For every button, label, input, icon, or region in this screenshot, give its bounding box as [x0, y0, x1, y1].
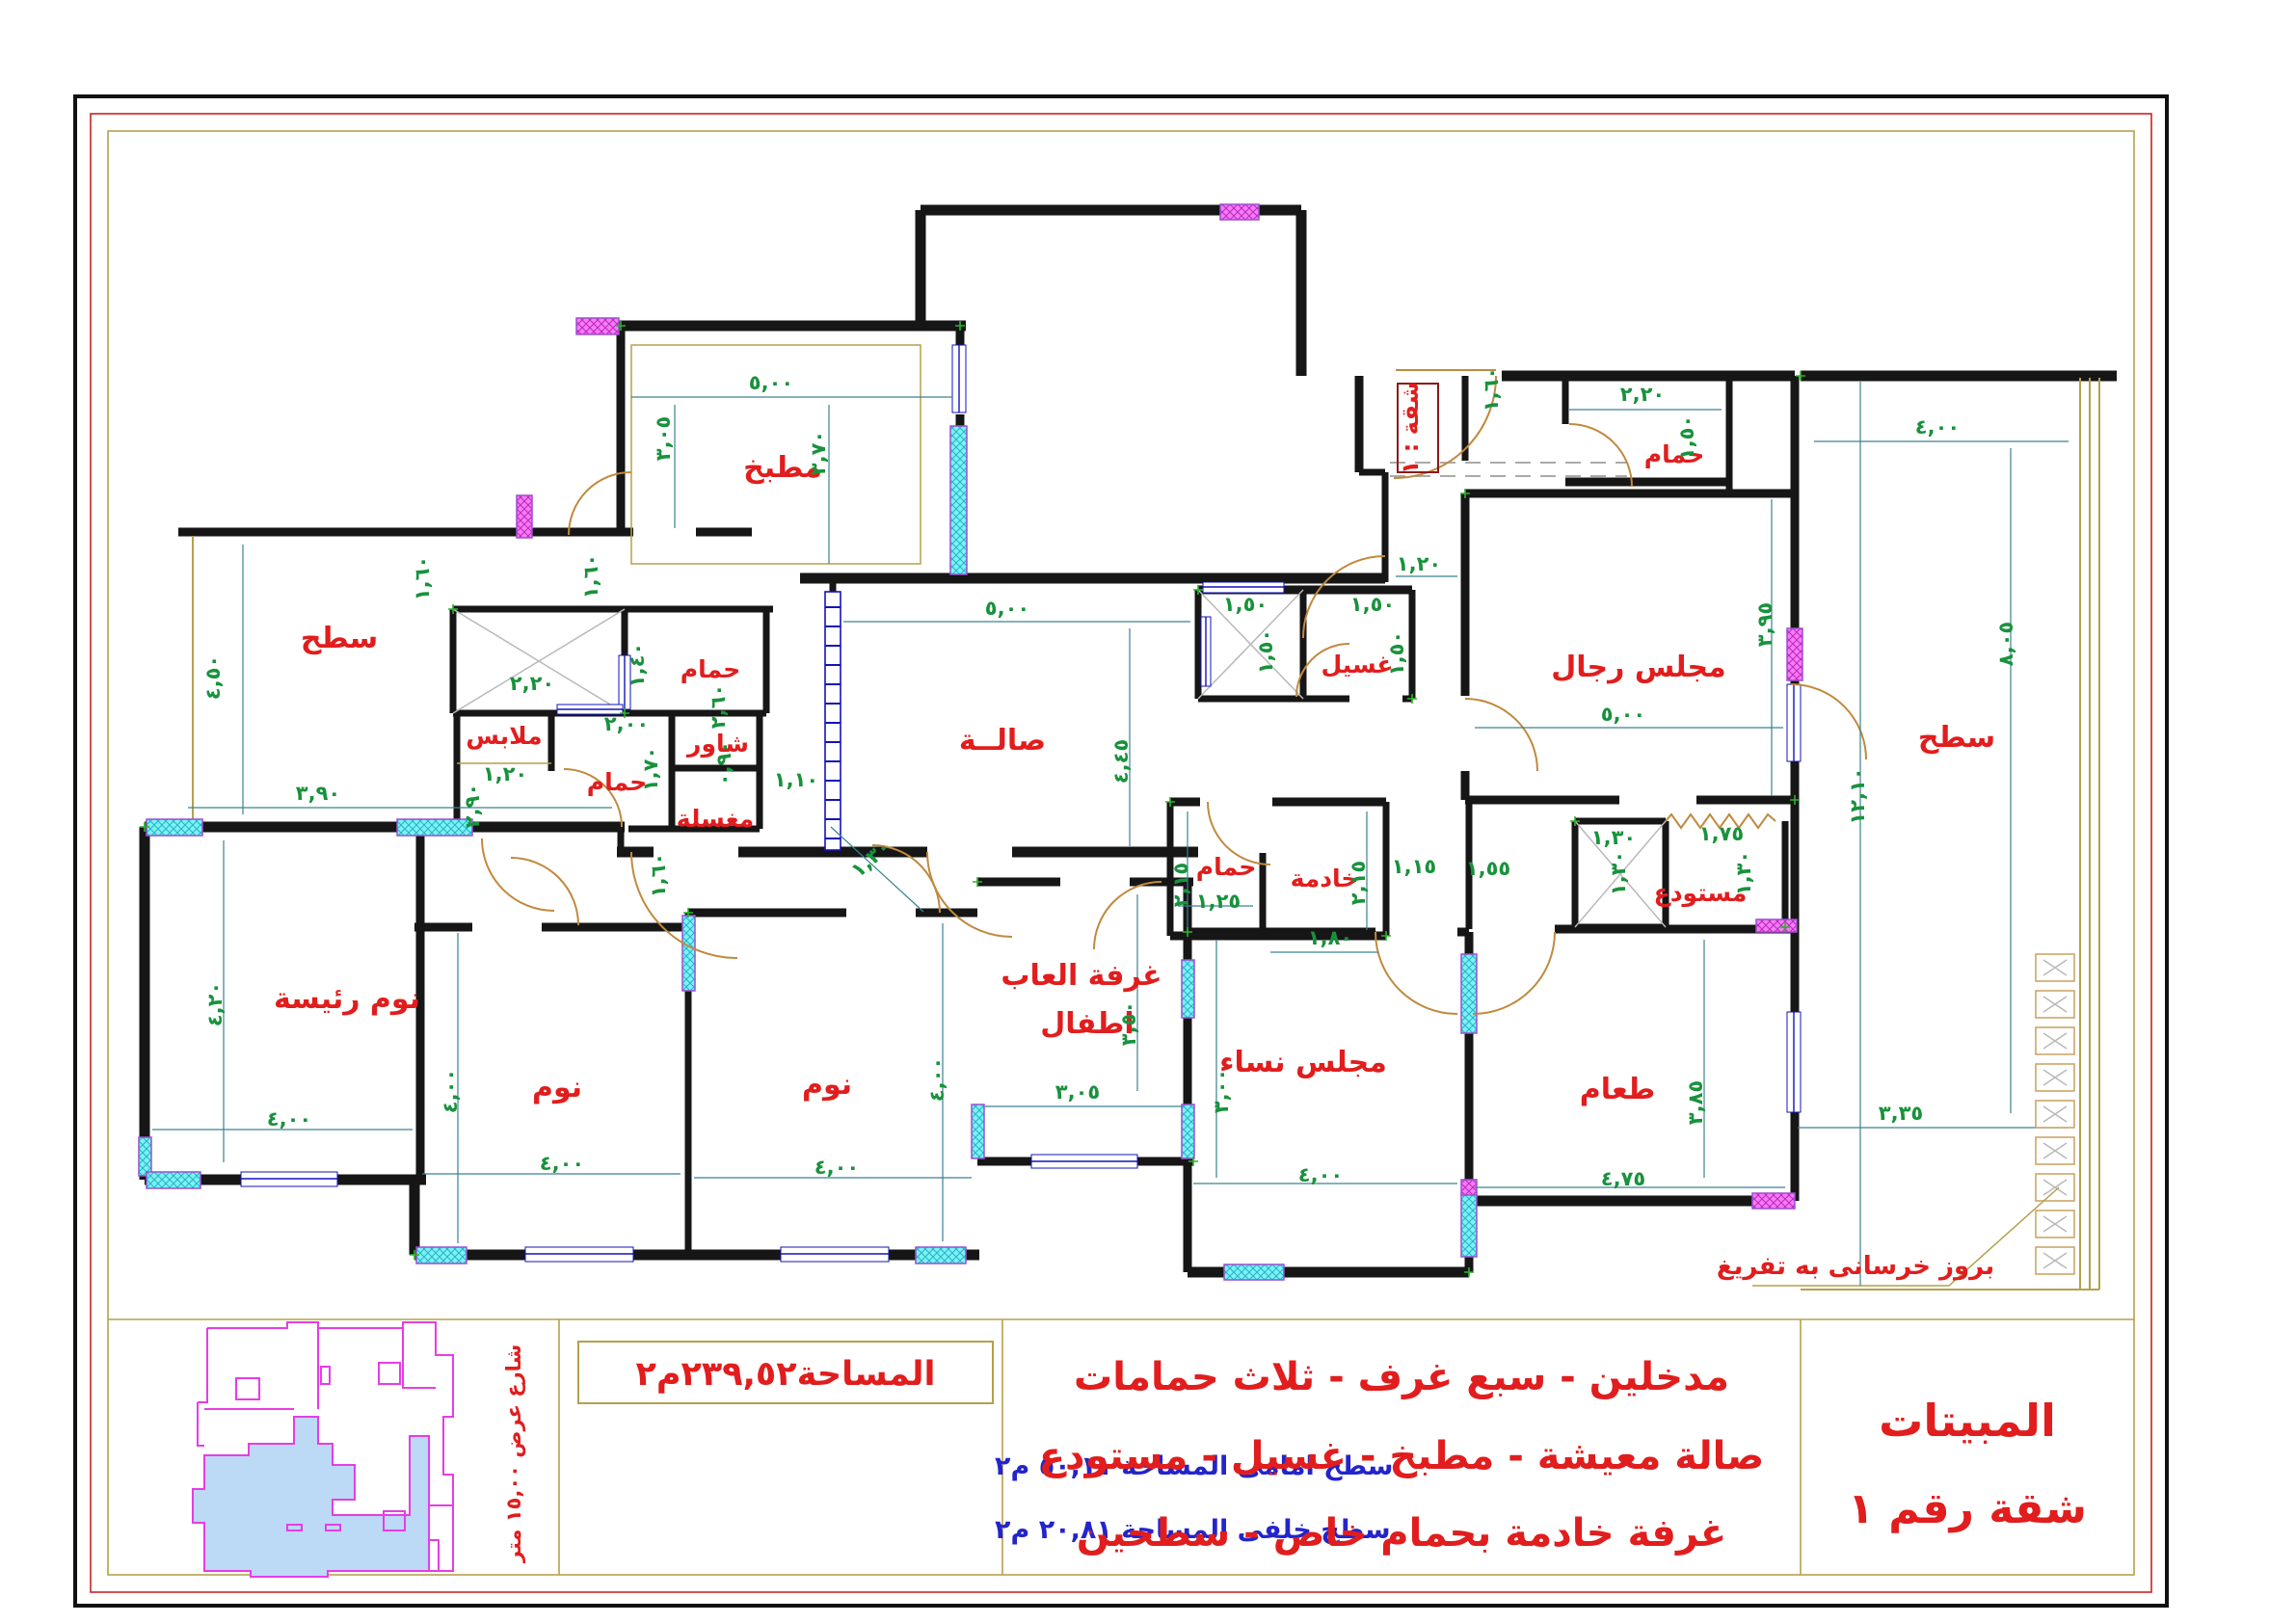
dim: ٣,٣٥ [1879, 1102, 1923, 1125]
site-shaded-area [193, 1417, 429, 1577]
apartment-tag-text: شقة : ١ [1397, 382, 1424, 474]
description-block: مدخلين - سبع غرف - ثلاث حمامات صالة معيش… [1039, 1355, 1765, 1556]
dim: ٤,٠٠ [925, 1057, 948, 1102]
room-label-bath-mid: حمام [587, 768, 648, 796]
site-key-plan: شارع عرض ١٥,٠٠ متر [193, 1322, 525, 1577]
dim: ٤,٥٠ [201, 655, 225, 700]
window-icon [416, 1247, 467, 1264]
dim: ١,٨٠ [1308, 926, 1352, 949]
dim: ٤,٠٠ [814, 1156, 859, 1179]
dim: ٥,٠٠ [1601, 703, 1645, 726]
dim: ٥,٠٠ [985, 597, 1029, 620]
dim: ١,٢٠ [483, 762, 527, 785]
dim: ٣,٧٠ [807, 431, 830, 475]
dim: ٨,٠٥ [1994, 622, 2017, 666]
annotation-text: بروز خرسانى به تفريغ [1717, 1252, 1994, 1281]
dim: ٤,٤٥ [1109, 739, 1133, 784]
dim: ١,٢٥ [1196, 890, 1241, 913]
dim: ٤,٠٠ [267, 1107, 311, 1131]
area-total: المساحة٢٣٩,٥٢م٢ [636, 1355, 936, 1394]
dim: ١,٥٠ [1675, 415, 1698, 460]
column-icon [1220, 204, 1259, 220]
room-label-closet: ملابس [466, 722, 542, 750]
dim: ٣,٩٥ [1753, 602, 1776, 647]
room-label-dining: طعام [1580, 1073, 1655, 1106]
room-label-bath-maid: حمام [1196, 853, 1257, 881]
dim: ١,٦٠ [647, 853, 670, 897]
dim: ١,٧٥ [1699, 822, 1744, 845]
description-line-1: مدخلين - سبع غرف - ثلاث حمامات [1074, 1355, 1729, 1399]
dim: ٤,٢٠ [203, 982, 227, 1026]
dim: ٢,٢٠ [510, 672, 554, 695]
dim: ١,٥٠ [1223, 593, 1268, 616]
window-icon [1182, 1104, 1194, 1158]
dim: ٢,١٥ [1169, 863, 1192, 907]
dim: ٣,٠٥ [652, 416, 675, 461]
room-label-women-majlis: مجلس نساء [1219, 1046, 1387, 1079]
street-label: شارع عرض ١٥,٠٠ متر [502, 1344, 525, 1563]
dim: ٤,٠٠ [540, 1152, 584, 1175]
room-label-playroom-1: غرفة العاب [1001, 959, 1161, 993]
window-icon [147, 819, 202, 836]
dim: ٣,٠٥ [1055, 1080, 1100, 1104]
window-icon [972, 1104, 984, 1158]
dim: ١,٢٠ [1397, 552, 1441, 575]
dim: ١,٧٠ [639, 747, 662, 791]
dim: ٢,٠٠ [604, 712, 649, 735]
window-icon [916, 1247, 966, 1264]
dim: ١,١٥ [1392, 855, 1436, 878]
room-label-hall: صالــة [959, 724, 1046, 758]
column-icon [1787, 628, 1802, 680]
dim: ١,١٠ [774, 768, 818, 791]
dim: ٣,٠٠ [1210, 1069, 1233, 1113]
room-label-men-majlis: مجلس رجال [1551, 651, 1725, 684]
room-label-bedroom-c: نوم [802, 1068, 852, 1102]
dim: ٤,٠٠ [1298, 1163, 1343, 1186]
dim: ١,٦٠ [579, 554, 602, 599]
parapet-units [2036, 954, 2074, 1274]
dim: ٤,٧٥ [1601, 1167, 1645, 1190]
room-label-laundry: غسيل [1321, 651, 1393, 678]
window-icon [139, 1137, 151, 1176]
dim: ١,٤٠ [626, 643, 649, 687]
column-icon [1752, 1193, 1795, 1209]
column-icon [1461, 1180, 1477, 1195]
window-icon [1461, 954, 1477, 1033]
dim: ٣,٩٠ [296, 782, 340, 805]
room-label-roof-right: سطح [1918, 721, 1995, 755]
glazed-partition [825, 592, 841, 850]
column-icon [517, 495, 532, 538]
dim: ١,٣٠ [1607, 851, 1630, 895]
dim: ٣,٥٠ [1117, 1001, 1140, 1046]
dim: ١,٥٠ [1350, 593, 1395, 616]
sheet-subtitle: شقة رقم ١ [1848, 1484, 2087, 1533]
window-icon [682, 916, 695, 991]
room-label-bath-upper: حمام [681, 655, 741, 683]
apartment-tag: شقة : ١ [1397, 382, 1438, 474]
description-line-3: غرفة خادمة بحمام خاص - سطحين [1077, 1511, 1726, 1556]
window-icon [950, 426, 967, 574]
sheet-title: المبيتات [1879, 1395, 2056, 1447]
dim: ١,٥٠ [1385, 631, 1408, 676]
dim: ٢,١٥ [1347, 861, 1370, 905]
dim: ٣,٨٥ [1684, 1080, 1707, 1125]
dim: ١,٣٠ [1591, 826, 1636, 849]
dim: ٢,٩٠ [461, 784, 484, 828]
cad-sheet: شارع عرض ١٥,٠٠ متر المساحة٢٣٩,٥٢م٢ سطح ا… [0, 0, 2296, 1623]
dim: ٢,٢٠ [1620, 383, 1665, 406]
dim: ٤,٠٠ [1915, 415, 1960, 439]
dim: ٥,٠٠ [749, 371, 793, 394]
dim: ١,٦٠ [411, 556, 434, 600]
dim: ١,٦٠ [1480, 367, 1503, 412]
dim: ١,٣٠ [846, 835, 895, 882]
window-icon [147, 1172, 200, 1188]
dim: ٤,٠٠ [439, 1069, 462, 1113]
window-icon [1461, 1193, 1477, 1257]
dim: ٠,٩٠ [712, 741, 735, 785]
dim: ١,٥٠ [1254, 629, 1277, 674]
column-icon [1756, 919, 1797, 932]
dim: ١,٥٥ [1466, 857, 1510, 880]
column-icon [576, 318, 619, 334]
dim: ١,٣٠ [1732, 851, 1755, 895]
floor-plan-canvas: شارع عرض ١٥,٠٠ متر المساحة٢٣٩,٥٢م٢ سطح ا… [0, 0, 2296, 1623]
room-label-roof-left: سطح [301, 622, 378, 655]
dim: ٢,٦٠ [707, 684, 730, 729]
description-line-2: صالة معيشة - مطبخ - غسيل - مستودع [1039, 1434, 1765, 1478]
room-label-washbasin: مغسلة [677, 805, 754, 833]
window-icon [1182, 960, 1194, 1018]
dim: ١٢,١٠ [1846, 767, 1869, 824]
title-block: المبيتات شقة رقم ١ [1848, 1395, 2087, 1533]
room-label-bedroom-l: نوم [532, 1071, 582, 1104]
room-label-master: نوم رئيسة [274, 982, 420, 1016]
window-icon [1224, 1264, 1284, 1280]
